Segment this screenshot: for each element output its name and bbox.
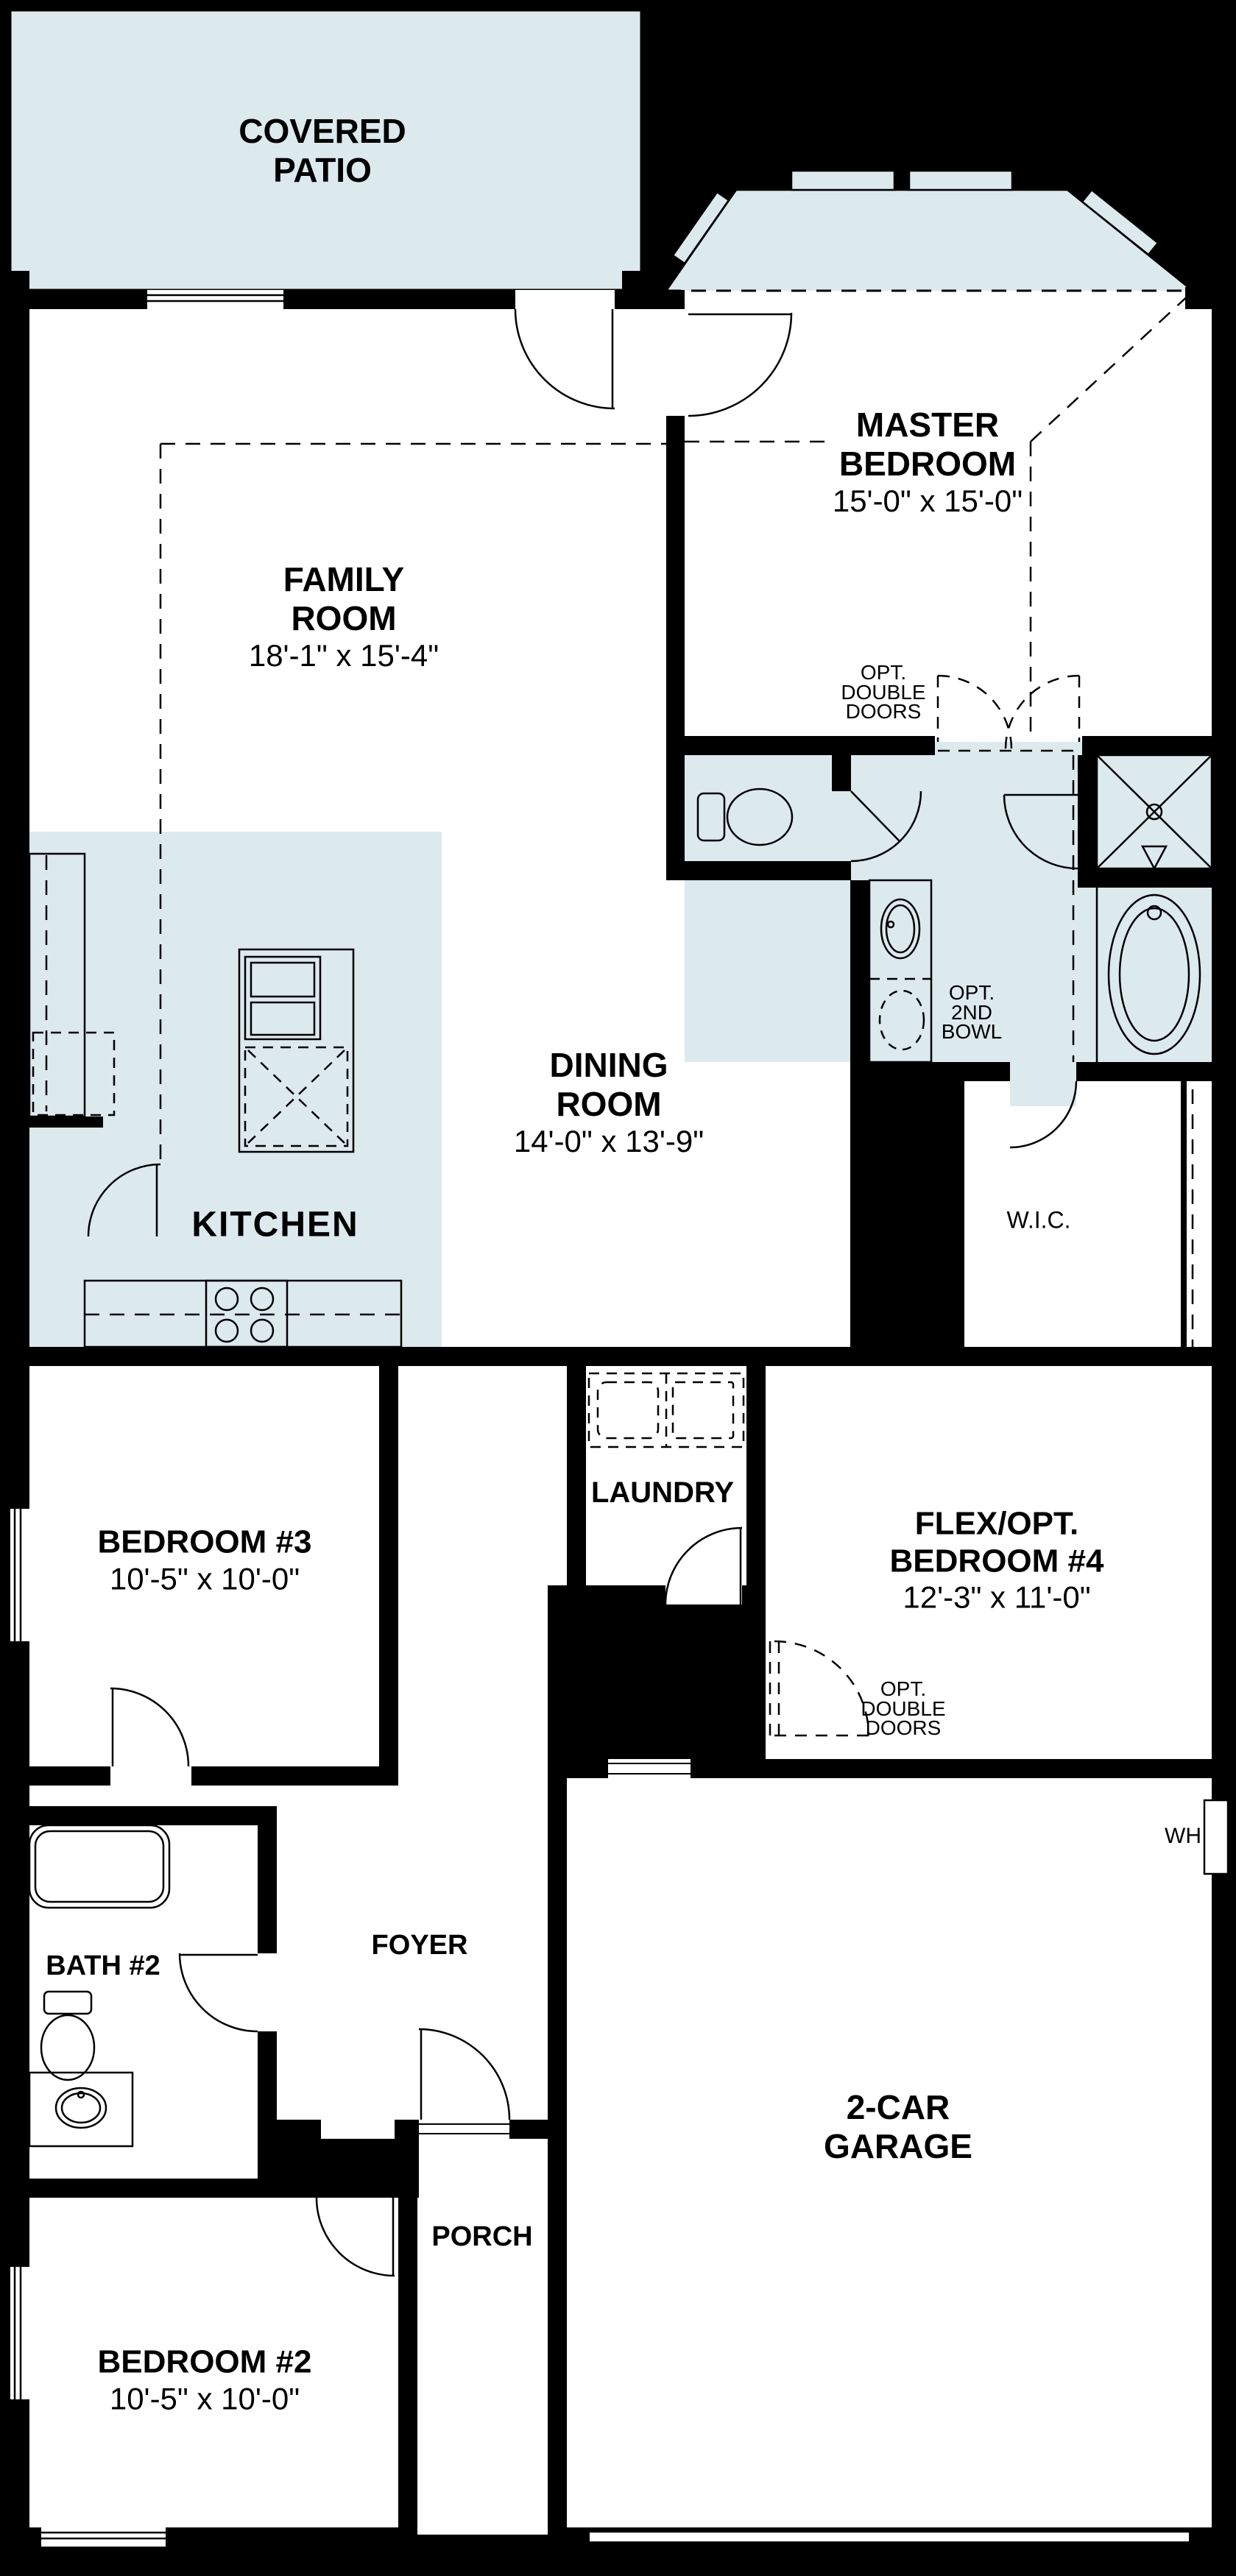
label-line: BEDROOM #4 bbox=[890, 1543, 1104, 1580]
wall bbox=[567, 1347, 1212, 1366]
wic-floor bbox=[964, 1081, 1212, 1364]
floor-areas bbox=[10, 10, 1212, 2536]
label-line: FLEX/OPT. bbox=[890, 1505, 1104, 1543]
label-line: COVERED bbox=[239, 112, 406, 151]
wall bbox=[850, 1062, 1010, 1081]
wall bbox=[1076, 1062, 1212, 1081]
wall bbox=[666, 416, 685, 743]
laundry-label: LAUNDRY bbox=[591, 1476, 734, 1510]
label-line: BOWL bbox=[942, 1022, 1002, 1042]
wall bbox=[746, 1604, 766, 1641]
label-line: DOORS bbox=[841, 702, 925, 722]
bay-window-sill-icon bbox=[791, 171, 894, 190]
wall bbox=[10, 1347, 401, 1366]
wc-door-gap bbox=[832, 791, 851, 861]
door-swing-icon bbox=[608, 1677, 691, 1759]
bedroom2-label: BEDROOM #2 10'-5" x 10'-0" bbox=[98, 2344, 312, 2417]
covered-patio-label: COVERED PATIO bbox=[239, 112, 406, 190]
wic-label: W.I.C. bbox=[1006, 1207, 1070, 1234]
wall bbox=[746, 1741, 766, 1759]
master-door-gap bbox=[666, 309, 685, 416]
label-line: ROOM bbox=[249, 599, 439, 638]
floor-plan-drawing bbox=[0, 0, 1236, 2576]
patio-post bbox=[622, 271, 641, 290]
label-line: GARAGE bbox=[824, 2127, 972, 2166]
wall bbox=[258, 2031, 277, 2198]
wall bbox=[10, 2527, 41, 2547]
patio-door-gap bbox=[515, 290, 615, 309]
master-bedroom-label: MASTER BEDROOM 15'-0" x 15'-0" bbox=[828, 406, 1027, 519]
wall-left-exterior bbox=[10, 290, 29, 1509]
label-line: DOORS bbox=[861, 1719, 945, 1738]
label-line: BEDROOM bbox=[833, 445, 1023, 484]
window-gap bbox=[41, 2527, 166, 2547]
wall bbox=[398, 2139, 417, 2536]
dining-room-label: DINING ROOM 14'-0" x 13'-9" bbox=[514, 1046, 704, 1159]
opt-2nd-bowl-label: OPT. 2ND BOWL bbox=[942, 983, 1002, 1042]
label-line: OPT. bbox=[861, 1680, 945, 1699]
label-line: FAMILY bbox=[249, 560, 439, 599]
window-gap bbox=[147, 290, 283, 309]
wall bbox=[685, 861, 851, 880]
room-dimensions: 18'-1" x 15'-4" bbox=[249, 638, 439, 673]
wall bbox=[567, 1585, 665, 1604]
wall bbox=[832, 755, 851, 791]
wall-stub bbox=[22, 1117, 103, 1128]
wall-left-exterior bbox=[10, 2399, 29, 2547]
wall bbox=[850, 880, 869, 1081]
label-line: DOUBLE bbox=[861, 1699, 945, 1719]
opt-door-sill-area bbox=[935, 742, 1082, 755]
room-dimensions: 10'-5" x 10'-0" bbox=[98, 1561, 312, 1596]
wall bbox=[283, 290, 515, 309]
wall bbox=[666, 743, 685, 880]
wall bbox=[10, 2179, 277, 2198]
wall bbox=[1078, 868, 1212, 888]
label-line: OPT. bbox=[841, 663, 925, 683]
floor-plan: COVERED PATIO FAMILY ROOM 18'-1" x 15'-4… bbox=[0, 0, 1236, 2576]
opt-double-doors-label: OPT. DOUBLE DOORS bbox=[841, 663, 925, 722]
wall-thin bbox=[1181, 1081, 1187, 1364]
wall bbox=[277, 2120, 321, 2198]
bay-window-sill-icon bbox=[909, 171, 1012, 190]
bay-window bbox=[666, 171, 1193, 291]
master-bedroom-floor bbox=[685, 287, 1212, 755]
porch-label: PORCH bbox=[431, 2221, 532, 2254]
wall bbox=[567, 1366, 586, 1604]
porch-floor bbox=[403, 2139, 567, 2536]
label-line: BEDROOM #2 bbox=[98, 2344, 312, 2382]
wall bbox=[379, 1366, 398, 1766]
label-line: DOUBLE bbox=[841, 683, 925, 703]
wall bbox=[548, 1778, 567, 2536]
bay-window-area bbox=[666, 190, 1193, 291]
wall bbox=[1078, 755, 1097, 868]
family-room-label: FAMILY ROOM 18'-1" x 15'-4" bbox=[249, 560, 439, 673]
wall bbox=[1082, 736, 1212, 755]
hallway-floor bbox=[398, 1366, 567, 1778]
label-line: DINING bbox=[514, 1046, 704, 1085]
wall bbox=[166, 2527, 398, 2547]
kitchen-label: KITCHEN bbox=[191, 1204, 359, 1245]
wall-left-exterior bbox=[10, 1641, 29, 2267]
room-dimensions: 14'-0" x 13'-9" bbox=[514, 1124, 704, 1159]
label-line: PATIO bbox=[239, 151, 406, 190]
front-door-gap bbox=[419, 2120, 509, 2139]
label-line: 2-CAR bbox=[824, 2088, 972, 2127]
wall bbox=[10, 1766, 110, 1786]
room-dimensions: 12'-3" x 11'-0" bbox=[890, 1579, 1104, 1615]
wall bbox=[742, 1585, 766, 1604]
water-heater-label: WH bbox=[1165, 1824, 1201, 1850]
water-heater-icon bbox=[1204, 1800, 1228, 1874]
flex-bedroom4-label: FLEX/OPT. BEDROOM #4 12'-3" x 11'-0" bbox=[890, 1505, 1104, 1615]
garage-label: 2-CAR GARAGE bbox=[824, 2088, 972, 2166]
opt-double-doors-label: OPT. DOUBLE DOORS bbox=[861, 1680, 945, 1738]
wall bbox=[548, 1585, 567, 1778]
wall bbox=[191, 1766, 398, 1786]
wall bbox=[746, 1366, 766, 1604]
bedroom3-label: BEDROOM #3 10'-5" x 10'-0" bbox=[98, 1524, 312, 1597]
room-dimensions: 10'-5" x 10'-0" bbox=[98, 2381, 312, 2416]
garage-door-gap bbox=[608, 1759, 691, 1778]
bath2-label: BATH #2 bbox=[46, 1950, 160, 1983]
wall bbox=[685, 736, 935, 755]
wall bbox=[509, 2120, 548, 2139]
label-line: ROOM bbox=[514, 1085, 704, 1124]
label-line: BEDROOM #3 bbox=[98, 1524, 312, 1562]
patio-post bbox=[10, 271, 29, 290]
wall bbox=[10, 1806, 265, 1825]
wall bbox=[258, 1806, 277, 1953]
garage-overhead-door-icon bbox=[589, 2532, 1190, 2542]
foyer-label: FOYER bbox=[372, 1930, 468, 1962]
wall bbox=[615, 290, 685, 309]
wall-right-exterior bbox=[1212, 287, 1231, 2547]
bath-wic-corridor-area bbox=[1010, 1062, 1076, 1106]
label-line: OPT. bbox=[942, 983, 1002, 1003]
label-line: MASTER bbox=[833, 406, 1023, 445]
wall bbox=[945, 1062, 964, 1364]
label-line: 2ND bbox=[942, 1003, 1002, 1023]
room-dimensions: 15'-0" x 15'-0" bbox=[833, 484, 1023, 519]
wall bbox=[10, 290, 147, 309]
